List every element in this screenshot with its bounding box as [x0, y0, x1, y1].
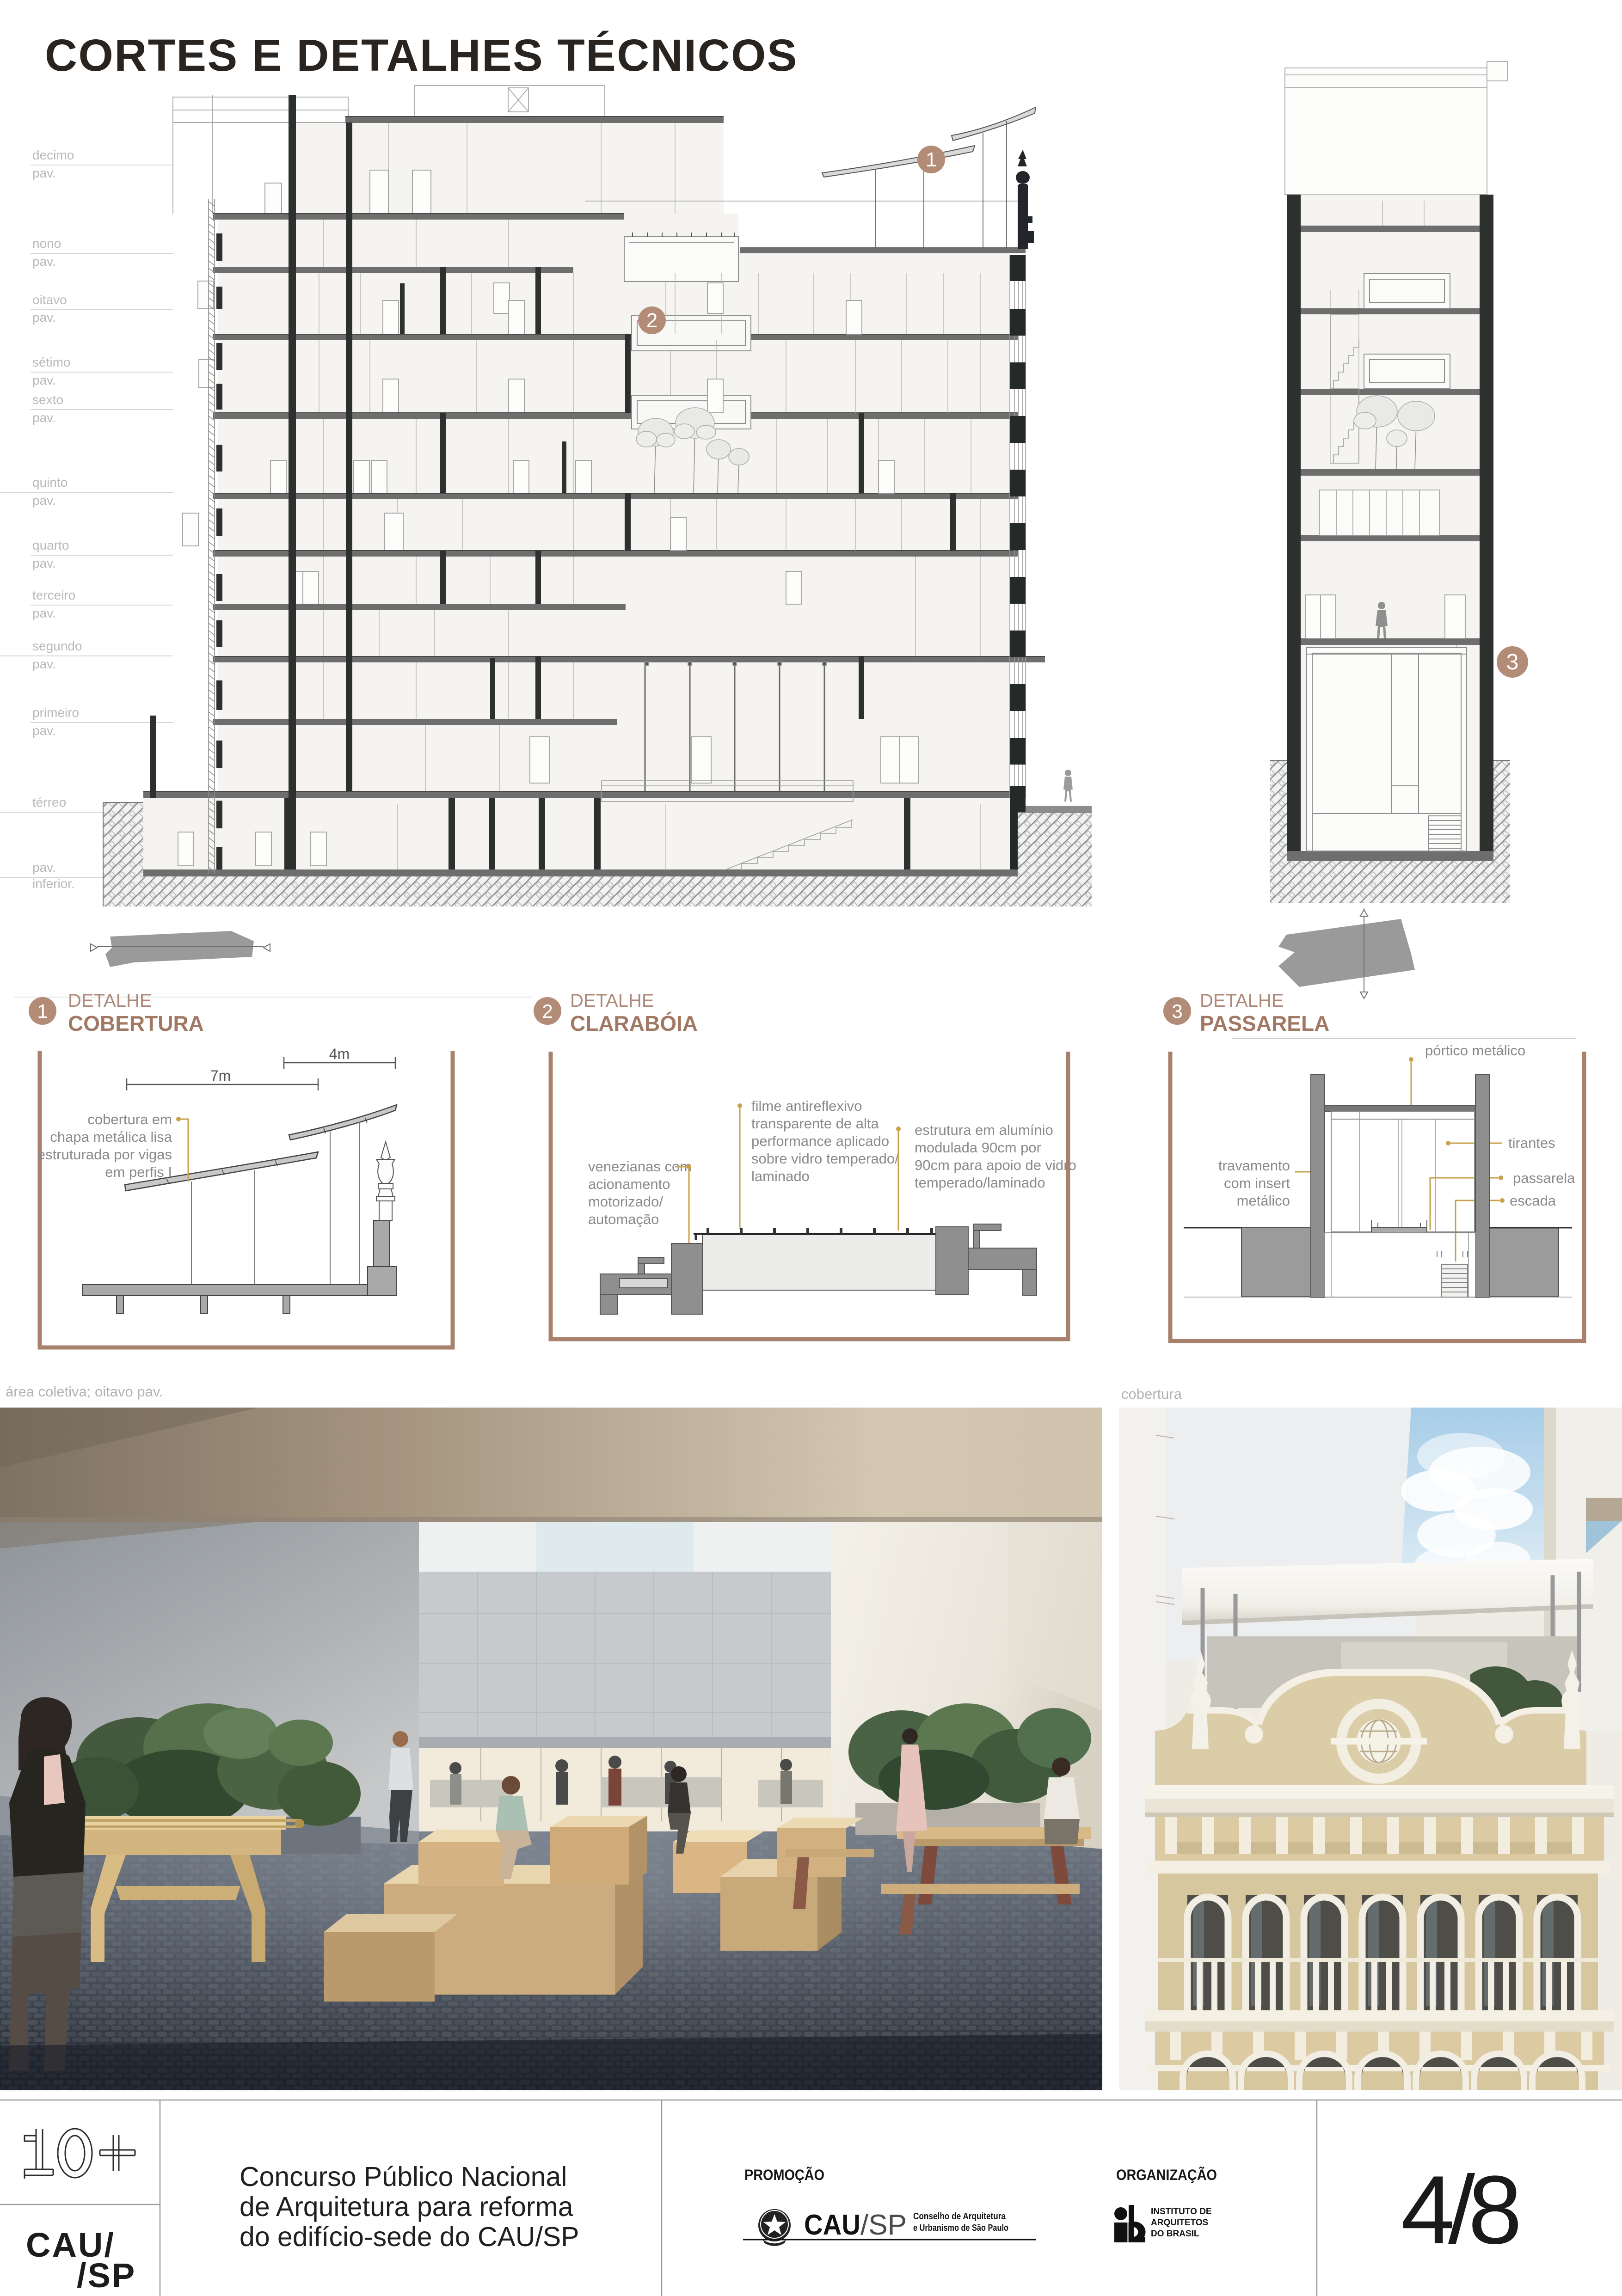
svg-text:Concurso Público Nacional: Concurso Público Nacional	[240, 2161, 567, 2192]
svg-text:tirantes: tirantes	[1508, 1135, 1555, 1151]
svg-text:laminado: laminado	[751, 1168, 810, 1184]
svg-text:/SP: /SP	[77, 2256, 136, 2295]
svg-text:metálico: metálico	[1237, 1193, 1290, 1209]
svg-text:4/8: 4/8	[1401, 2155, 1522, 2264]
svg-text:pav.: pav.	[32, 166, 56, 180]
svg-text:DETALHE: DETALHE	[1200, 991, 1284, 1011]
svg-text:escada: escada	[1510, 1193, 1556, 1209]
svg-text:pav.: pav.	[32, 723, 56, 738]
svg-text:quarto: quarto	[32, 538, 69, 552]
svg-text:CAU: CAU	[804, 2209, 860, 2241]
svg-text:térreo: térreo	[32, 795, 66, 809]
svg-text:filme antireflexivo: filme antireflexivo	[751, 1098, 862, 1114]
svg-text:COBERTURA: COBERTURA	[68, 1011, 204, 1035]
svg-text:oitavo: oitavo	[32, 293, 67, 307]
svg-text:pav.: pav.	[32, 493, 56, 508]
svg-text:inferior.: inferior.	[32, 876, 75, 891]
svg-text:cobertura: cobertura	[1121, 1386, 1182, 1402]
svg-text:travamento: travamento	[1218, 1157, 1290, 1174]
svg-text:pav.: pav.	[32, 556, 56, 570]
svg-text:DETALHE: DETALHE	[68, 991, 152, 1011]
svg-text:pav.: pav.	[32, 657, 56, 671]
svg-text:performance aplicado: performance aplicado	[751, 1133, 889, 1149]
svg-text:CLARABÓIA: CLARABÓIA	[570, 1011, 698, 1035]
svg-text:acionamento: acionamento	[588, 1176, 670, 1192]
svg-text:e Urbanismo de São Paulo: e Urbanismo de São Paulo	[913, 2223, 1008, 2233]
svg-text:área coletiva; oitavo pav.: área coletiva; oitavo pav.	[6, 1384, 163, 1400]
svg-text:pórtico metálico: pórtico metálico	[1425, 1042, 1525, 1059]
svg-text:1: 1	[37, 1000, 48, 1022]
svg-text:sexto: sexto	[32, 392, 63, 407]
svg-text:PROMOÇÃO: PROMOÇÃO	[744, 2167, 824, 2183]
svg-text:4m: 4m	[329, 1046, 350, 1062]
svg-text:3: 3	[1506, 650, 1519, 674]
svg-text:90cm para apoio de vidro: 90cm para apoio de vidro	[915, 1157, 1076, 1173]
svg-text:primeiro: primeiro	[32, 705, 79, 720]
svg-text:terceiro: terceiro	[32, 588, 75, 602]
svg-text:motorizado/: motorizado/	[588, 1194, 663, 1210]
svg-text:INSTITUTO DE: INSTITUTO DE	[1151, 2207, 1212, 2216]
svg-text:2: 2	[646, 309, 657, 332]
svg-text:segundo: segundo	[32, 639, 82, 653]
svg-text:ORGANIZAÇÃO: ORGANIZAÇÃO	[1116, 2167, 1217, 2183]
svg-text:7m: 7m	[210, 1067, 231, 1084]
svg-text:passarela: passarela	[1513, 1170, 1575, 1186]
svg-text:PASSARELA: PASSARELA	[1200, 1011, 1329, 1035]
svg-text:do edifício-sede do CAU/SP: do edifício-sede do CAU/SP	[240, 2222, 579, 2252]
svg-text:sétimo: sétimo	[32, 355, 70, 369]
svg-text:pav.: pav.	[32, 373, 56, 387]
svg-text:chapa metálica lisa: chapa metálica lisa	[50, 1129, 172, 1145]
svg-text:/SP: /SP	[860, 2209, 907, 2241]
svg-text:com insert: com insert	[1224, 1175, 1290, 1191]
svg-text:3: 3	[1172, 1000, 1182, 1022]
svg-text:pav.: pav.	[32, 860, 56, 875]
svg-text:em perfis I: em perfis I	[105, 1164, 172, 1180]
svg-text:pav.: pav.	[32, 254, 56, 269]
svg-text:Conselho de Arquitetura: Conselho de Arquitetura	[913, 2211, 1006, 2222]
svg-text:DO BRASIL: DO BRASIL	[1151, 2229, 1199, 2239]
svg-text:1: 1	[926, 148, 937, 171]
svg-text:estruturada por vigas: estruturada por vigas	[37, 1146, 172, 1163]
svg-text:pav.: pav.	[32, 410, 56, 425]
svg-text:transparente de alta: transparente de alta	[751, 1115, 879, 1132]
svg-text:quinto: quinto	[32, 475, 68, 490]
svg-text:modulada 90cm por: modulada 90cm por	[915, 1139, 1041, 1156]
svg-text:DETALHE: DETALHE	[570, 991, 654, 1011]
svg-text:cobertura em: cobertura em	[87, 1111, 172, 1127]
svg-text:sobre vidro temperado/: sobre vidro temperado/	[751, 1151, 899, 1167]
svg-text:ARQUITETOS: ARQUITETOS	[1151, 2218, 1208, 2228]
svg-text:pav.: pav.	[32, 310, 56, 325]
svg-text:automação: automação	[588, 1211, 659, 1227]
svg-text:2: 2	[542, 1000, 553, 1022]
svg-text:pav.: pav.	[32, 606, 56, 620]
svg-text:estrutura em alumínio: estrutura em alumínio	[915, 1122, 1053, 1138]
svg-text:temperado/laminado: temperado/laminado	[915, 1175, 1045, 1191]
svg-text:decimo: decimo	[32, 148, 74, 162]
svg-text:de Arquitetura para reforma: de Arquitetura para reforma	[240, 2192, 573, 2222]
svg-text:nono: nono	[32, 236, 61, 251]
